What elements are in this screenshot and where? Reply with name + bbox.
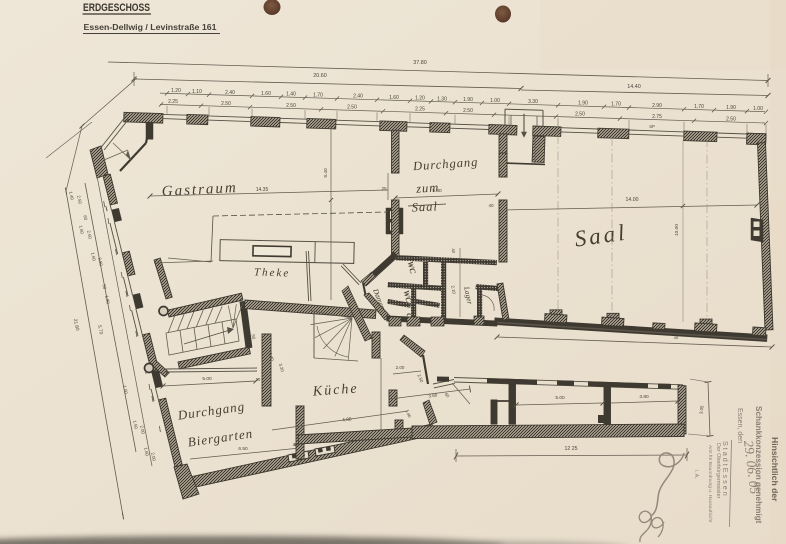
svg-text:3.30: 3.30 — [528, 99, 538, 105]
svg-text:1.90: 1.90 — [578, 101, 588, 107]
svg-text:Essen-Dellwig / Levinstraße 16: Essen-Dellwig / Levinstraße 161 — [84, 22, 217, 32]
svg-text:20.60: 20.60 — [313, 73, 327, 79]
svg-text:5.00: 5.00 — [202, 376, 212, 382]
svg-text:2.00: 2.00 — [396, 365, 405, 370]
svg-text:1.30: 1.30 — [437, 96, 447, 102]
svg-text:9.40: 9.40 — [323, 168, 329, 178]
svg-text:2.50: 2.50 — [221, 101, 231, 107]
svg-text:2.40: 2.40 — [353, 94, 363, 100]
svg-text:3.80: 3.80 — [639, 394, 649, 400]
svg-text:Saal: Saal — [411, 199, 438, 214]
svg-text:40: 40 — [488, 203, 494, 208]
svg-text:1.70: 1.70 — [313, 93, 323, 99]
svg-text:2.75: 2.75 — [652, 114, 662, 120]
svg-text:2.50: 2.50 — [463, 108, 473, 114]
svg-text:1.00: 1.00 — [490, 98, 500, 104]
svg-text:2.25: 2.25 — [168, 99, 178, 105]
svg-text:6.50: 6.50 — [238, 446, 248, 452]
svg-text:40: 40 — [674, 335, 679, 340]
svg-text:ERDGESCHOSS: ERDGESCHOSS — [83, 2, 150, 14]
svg-text:Theke: Theke — [254, 266, 291, 279]
svg-text:Amt für Bauordnung u. Hausaufs: Amt für Bauordnung u. Hausaufsicht — [707, 445, 713, 523]
svg-text:2.50: 2.50 — [286, 103, 296, 109]
svg-text:2.90: 2.90 — [652, 103, 662, 109]
svg-text:Essen, den: Essen, den — [736, 408, 743, 443]
svg-text:SP: SP — [649, 124, 655, 129]
svg-text:1.90: 1.90 — [463, 97, 473, 103]
svg-text:1.90: 1.90 — [726, 105, 736, 111]
svg-text:2.50: 2.50 — [347, 105, 357, 111]
svg-text:14.00: 14.00 — [626, 197, 639, 203]
svg-text:1.00: 1.00 — [753, 106, 763, 112]
svg-text:i. A.: i. A. — [693, 470, 699, 479]
svg-text:Hinsichtlich der: Hinsichtlich der — [770, 437, 780, 502]
svg-text:3.60: 3.60 — [428, 393, 438, 399]
svg-text:1.60: 1.60 — [389, 95, 399, 101]
svg-text:2.40: 2.40 — [225, 90, 235, 96]
svg-text:12 25: 12 25 — [565, 446, 578, 452]
svg-text:1.60: 1.60 — [261, 91, 271, 97]
svg-text:5.40: 5.40 — [432, 188, 442, 194]
svg-text:2.50: 2.50 — [575, 112, 585, 118]
svg-text:37.80: 37.80 — [413, 60, 427, 66]
svg-text:14.35: 14.35 — [256, 187, 269, 193]
svg-text:1.40: 1.40 — [286, 92, 296, 98]
svg-text:10: 10 — [256, 377, 261, 382]
svg-text:1.20: 1.20 — [171, 88, 181, 94]
svg-text:Der Oberbürgermeister: Der Oberbürgermeister — [715, 443, 721, 499]
svg-text:4.80: 4.80 — [342, 416, 352, 423]
svg-text:5.00: 5.00 — [555, 395, 565, 401]
svg-text:2.25: 2.25 — [415, 107, 425, 113]
svg-text:2.50: 2.50 — [726, 116, 736, 122]
svg-text:1.70: 1.70 — [694, 104, 704, 110]
svg-text:10.00: 10.00 — [674, 224, 680, 236]
svg-text:14.40: 14.40 — [627, 84, 641, 90]
svg-text:1.20: 1.20 — [415, 96, 425, 102]
svg-text:S t a d t E s s e n: S t a d t E s s e n — [721, 441, 730, 496]
svg-text:1.10: 1.10 — [192, 89, 202, 95]
svg-text:1.70: 1.70 — [611, 102, 621, 108]
